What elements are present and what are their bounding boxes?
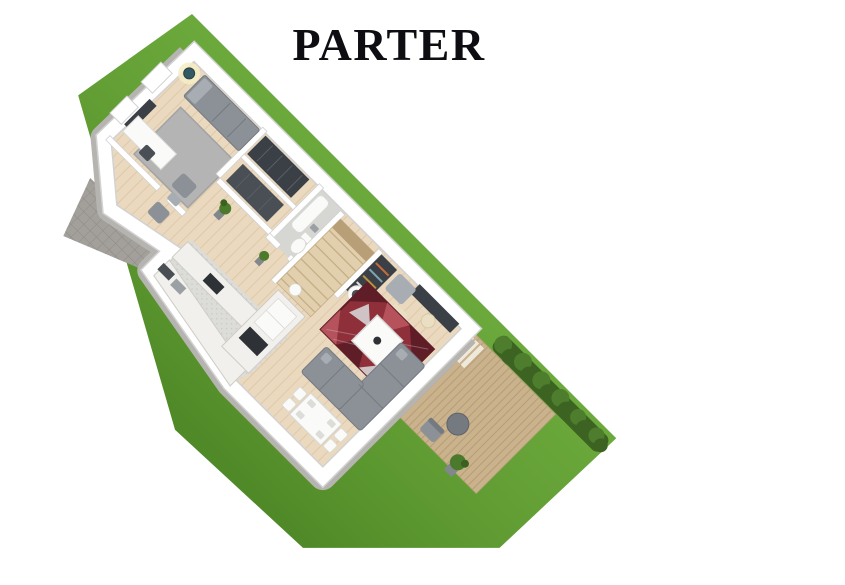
page: PARTER [0,0,845,585]
site-3d-scene [0,0,617,585]
ground-floor-plan-figure [0,0,845,585]
